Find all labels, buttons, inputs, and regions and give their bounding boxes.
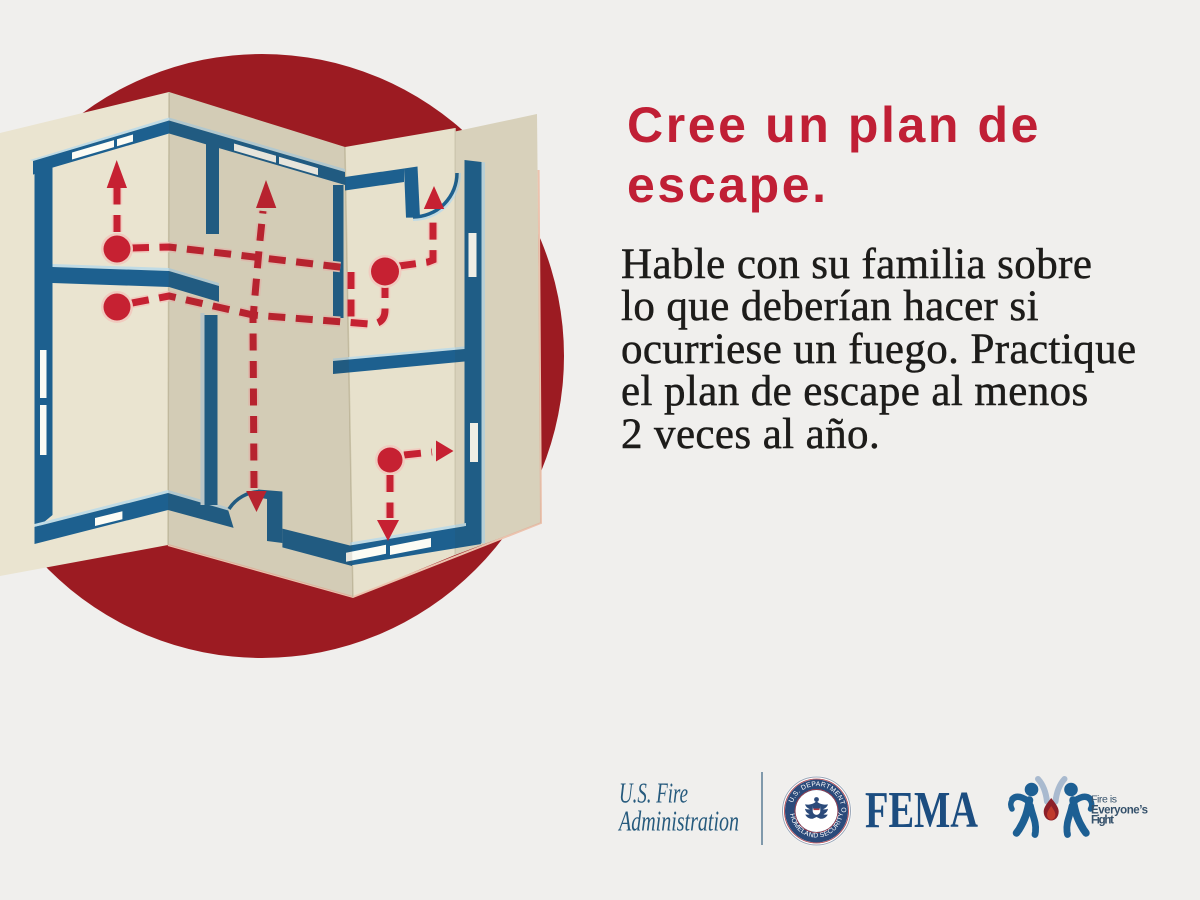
svg-text:Administration: Administration [618,807,739,838]
svg-text:U.S. Fire: U.S. Fire [619,779,688,810]
svg-text:U.S. DEPARTMENT OF: U.S. DEPARTMENT OF [0,0,847,813]
svg-text:Fight: Fight [1091,814,1114,826]
svg-text:FEMA: FEMA [865,782,978,839]
